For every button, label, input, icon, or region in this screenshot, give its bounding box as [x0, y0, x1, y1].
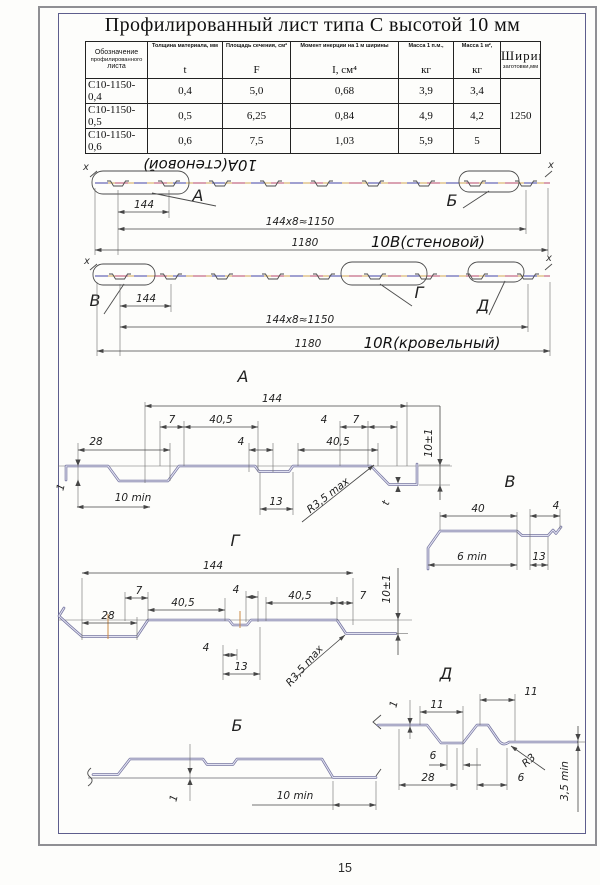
radius-label: R3,5 max — [305, 475, 353, 516]
roof-profile-drawing: x x В Г Д 144 144x8≈1150 1180 10R(кровел… — [83, 253, 552, 356]
dim-4-mid-label: 4 — [238, 436, 245, 448]
dim-7-left-label: 7 — [136, 585, 143, 597]
dim-4-label: 4 — [553, 500, 560, 512]
document-page: Профилированный лист типа С высотой 10 м… — [0, 0, 600, 885]
dim-28-label: 28 — [421, 772, 435, 784]
detail-a-title: А — [237, 367, 249, 386]
dim-height-label: 10±1 — [423, 429, 435, 458]
detail-g-title: Г — [231, 531, 241, 550]
dim-144-label: 144 — [203, 560, 223, 572]
callout-letter-b: Б — [447, 191, 458, 210]
dim-6-left-label: 6 — [430, 750, 437, 762]
axis-mark-left: x — [82, 162, 89, 173]
dim-40-5-right-label: 40,5 — [288, 590, 312, 602]
dim-modules-total-label: 144x8≈1150 — [266, 314, 335, 326]
technical-drawings: x x 10А(стеновой) А Б 144 144x8≈1150 118… — [0, 0, 600, 885]
detail-v: В 40 4 6 min 13 — [428, 472, 561, 570]
dim-10-min-label: 10 min — [115, 492, 152, 504]
dim-6-min-label: 6 min — [457, 551, 487, 563]
dim-7-left-label: 7 — [169, 414, 176, 426]
dim-40-5-right-label: 40,5 — [326, 436, 350, 448]
callout-oval-g — [341, 262, 427, 285]
wall-profile-drawing: x x 10А(стеновой) А Б 144 144x8≈1150 118… — [82, 156, 554, 255]
flipped-type-label: 10А(стеновой) — [143, 156, 257, 174]
dim-4-mid-label: 4 — [203, 642, 210, 654]
dim-module-label: 144 — [134, 199, 154, 211]
dim-40-label: 40 — [471, 503, 485, 515]
axis-mark-right: x — [545, 253, 552, 264]
callout-letter-d: Д — [476, 296, 490, 315]
dim-4-top-label: 4 — [233, 584, 240, 596]
thickness-label: t — [380, 498, 393, 507]
axis-mark-left: x — [83, 256, 90, 267]
callout-letter-a: А — [192, 186, 204, 205]
dim-module-label: 144 — [136, 293, 156, 305]
dim-modules-total-label: 144x8≈1150 — [266, 216, 335, 228]
detail-a: А 144 7 40,5 — [54, 367, 452, 522]
callout-letter-v: В — [90, 291, 101, 310]
dim-13-label: 13 — [532, 551, 545, 563]
dim-11-left-label: 11 — [430, 699, 443, 711]
dim-1-label: 1 — [167, 793, 180, 803]
dim-1-label: 1 — [54, 482, 67, 492]
dim-40-5-left-label: 40,5 — [209, 414, 233, 426]
type-label: 10В(стеновой) — [371, 233, 485, 251]
dim-10-min-label: 10 min — [277, 790, 314, 802]
dim-3-5-min-label: 3,5 min — [559, 761, 571, 801]
radius-label: R3,5 max — [284, 643, 327, 689]
axis-mark-right: x — [547, 160, 554, 171]
type-label: 10R(кровельный) — [364, 334, 501, 352]
dim-28-label: 28 — [89, 436, 103, 448]
dim-7-right-label: 7 — [353, 414, 360, 426]
detail-g: Г 144 7 40,5 4 — [58, 531, 412, 689]
dim-width-label: 1180 — [295, 338, 322, 350]
dim-40-5-left-label: 40,5 — [171, 597, 195, 609]
dim-6-right-label: 6 — [518, 772, 525, 784]
dim-height-label: 10±1 — [381, 575, 393, 604]
detail-d-title: Д — [439, 664, 453, 683]
detail-b-title: Б — [232, 716, 243, 735]
callout-letter-g: Г — [415, 283, 425, 302]
dim-7-right-label: 7 — [360, 590, 367, 602]
detail-d: Д 1 11 11 6 28 6 — [373, 664, 586, 812]
dim-width-label: 1180 — [292, 237, 319, 249]
dim-1-label: 1 — [387, 699, 400, 709]
dim-28-label: 28 — [101, 610, 115, 622]
callout-oval-v — [93, 264, 155, 285]
dim-11-right-label: 11 — [524, 686, 537, 698]
detail-v-title: В — [505, 472, 516, 491]
dim-144-label: 144 — [262, 393, 282, 405]
dim-13-label: 13 — [234, 661, 247, 673]
dim-13-label: 13 — [269, 496, 282, 508]
detail-b: Б 1 10 min — [88, 716, 381, 810]
dim-4-top-label: 4 — [321, 414, 328, 426]
page-number: 15 — [310, 861, 380, 875]
